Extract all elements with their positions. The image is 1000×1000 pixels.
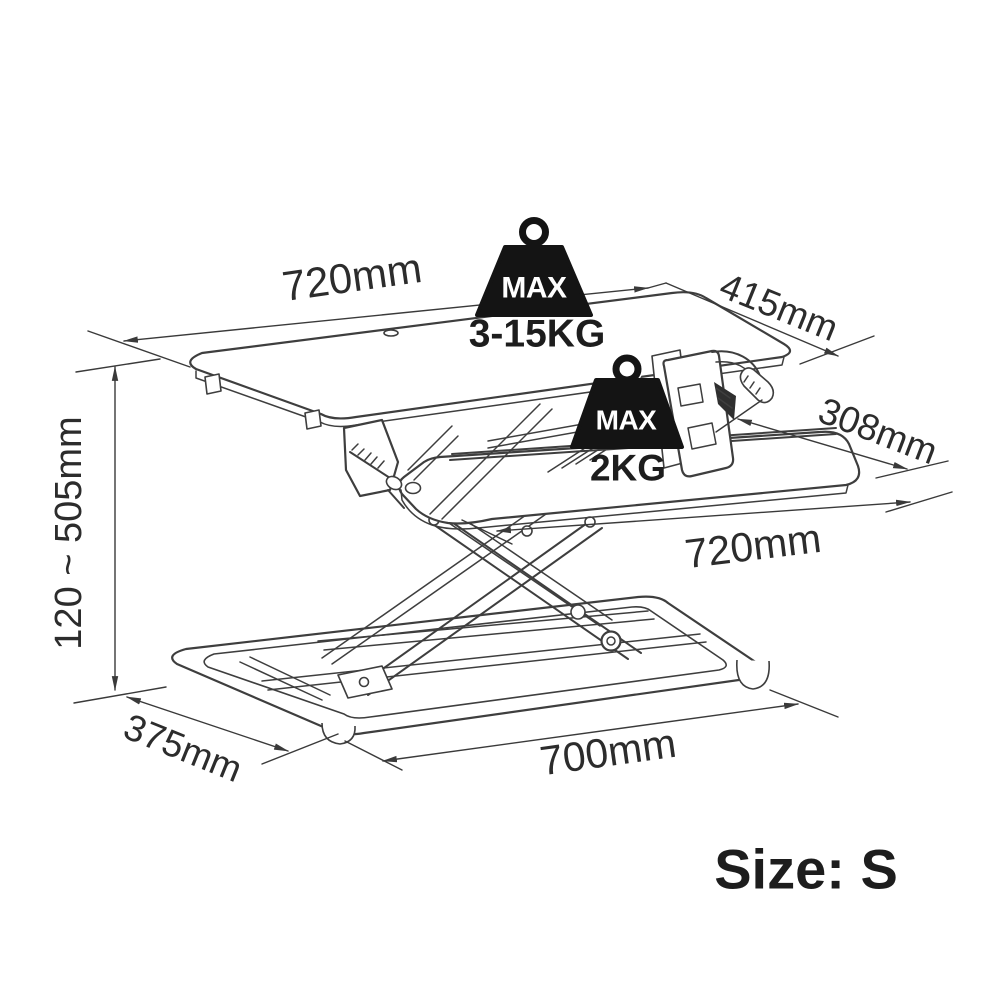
ext-base-right: [770, 690, 838, 717]
ext-base-front-left: [262, 734, 338, 764]
desktop-weight-rating: MAX 3-15KG: [469, 215, 606, 356]
ext-height-top: [76, 359, 160, 372]
ext-base-left: [345, 741, 402, 770]
ext-tray-left: [462, 520, 512, 544]
roller-wheel: [602, 632, 621, 651]
left-clamp-bracket: [344, 420, 404, 508]
tray-weight-badge: MAX: [596, 405, 658, 436]
desktop-weight-capacity: 3-15KG: [469, 313, 606, 356]
size-label: Size: S: [714, 838, 898, 901]
base-foot-front-right: [737, 660, 769, 689]
height-range-label: 120 ~ 505mm: [48, 416, 90, 649]
desktop-clip-2: [305, 410, 321, 429]
desktop-width-label: 720mm: [279, 244, 424, 310]
desk-illustration: [172, 292, 859, 744]
desktop-grommet-hole: [384, 330, 398, 336]
desk-dimension-diagram: 720mm 415mm 120 ~ 505mm 375mm 700mm 720m…: [0, 0, 1000, 1000]
desktop-clip-1: [205, 374, 221, 394]
ext-height-bottom: [74, 687, 166, 703]
release-handle: [740, 368, 773, 403]
pivot-bolt-left: [360, 678, 369, 687]
pivot-bolt-tray: [522, 526, 532, 536]
base-foot-front-left: [322, 723, 355, 744]
roller-rear: [571, 605, 585, 619]
tray-weight-capacity: 2KG: [590, 448, 666, 489]
tray-bolt: [406, 483, 421, 494]
tray-width-label: 720mm: [682, 515, 823, 577]
dim-vertex-link: [648, 283, 666, 288]
ext-tray-right: [886, 492, 952, 512]
base-width-label: 700mm: [537, 720, 679, 785]
pivot-bolt-top-a: [585, 517, 595, 527]
desktop-weight-badge: MAX: [501, 272, 567, 305]
diagram-canvas: 720mm 415mm 120 ~ 505mm 375mm 700mm 720m…: [0, 0, 1000, 1000]
base-depth-label: 375mm: [118, 706, 248, 790]
base-frame: [172, 597, 769, 744]
